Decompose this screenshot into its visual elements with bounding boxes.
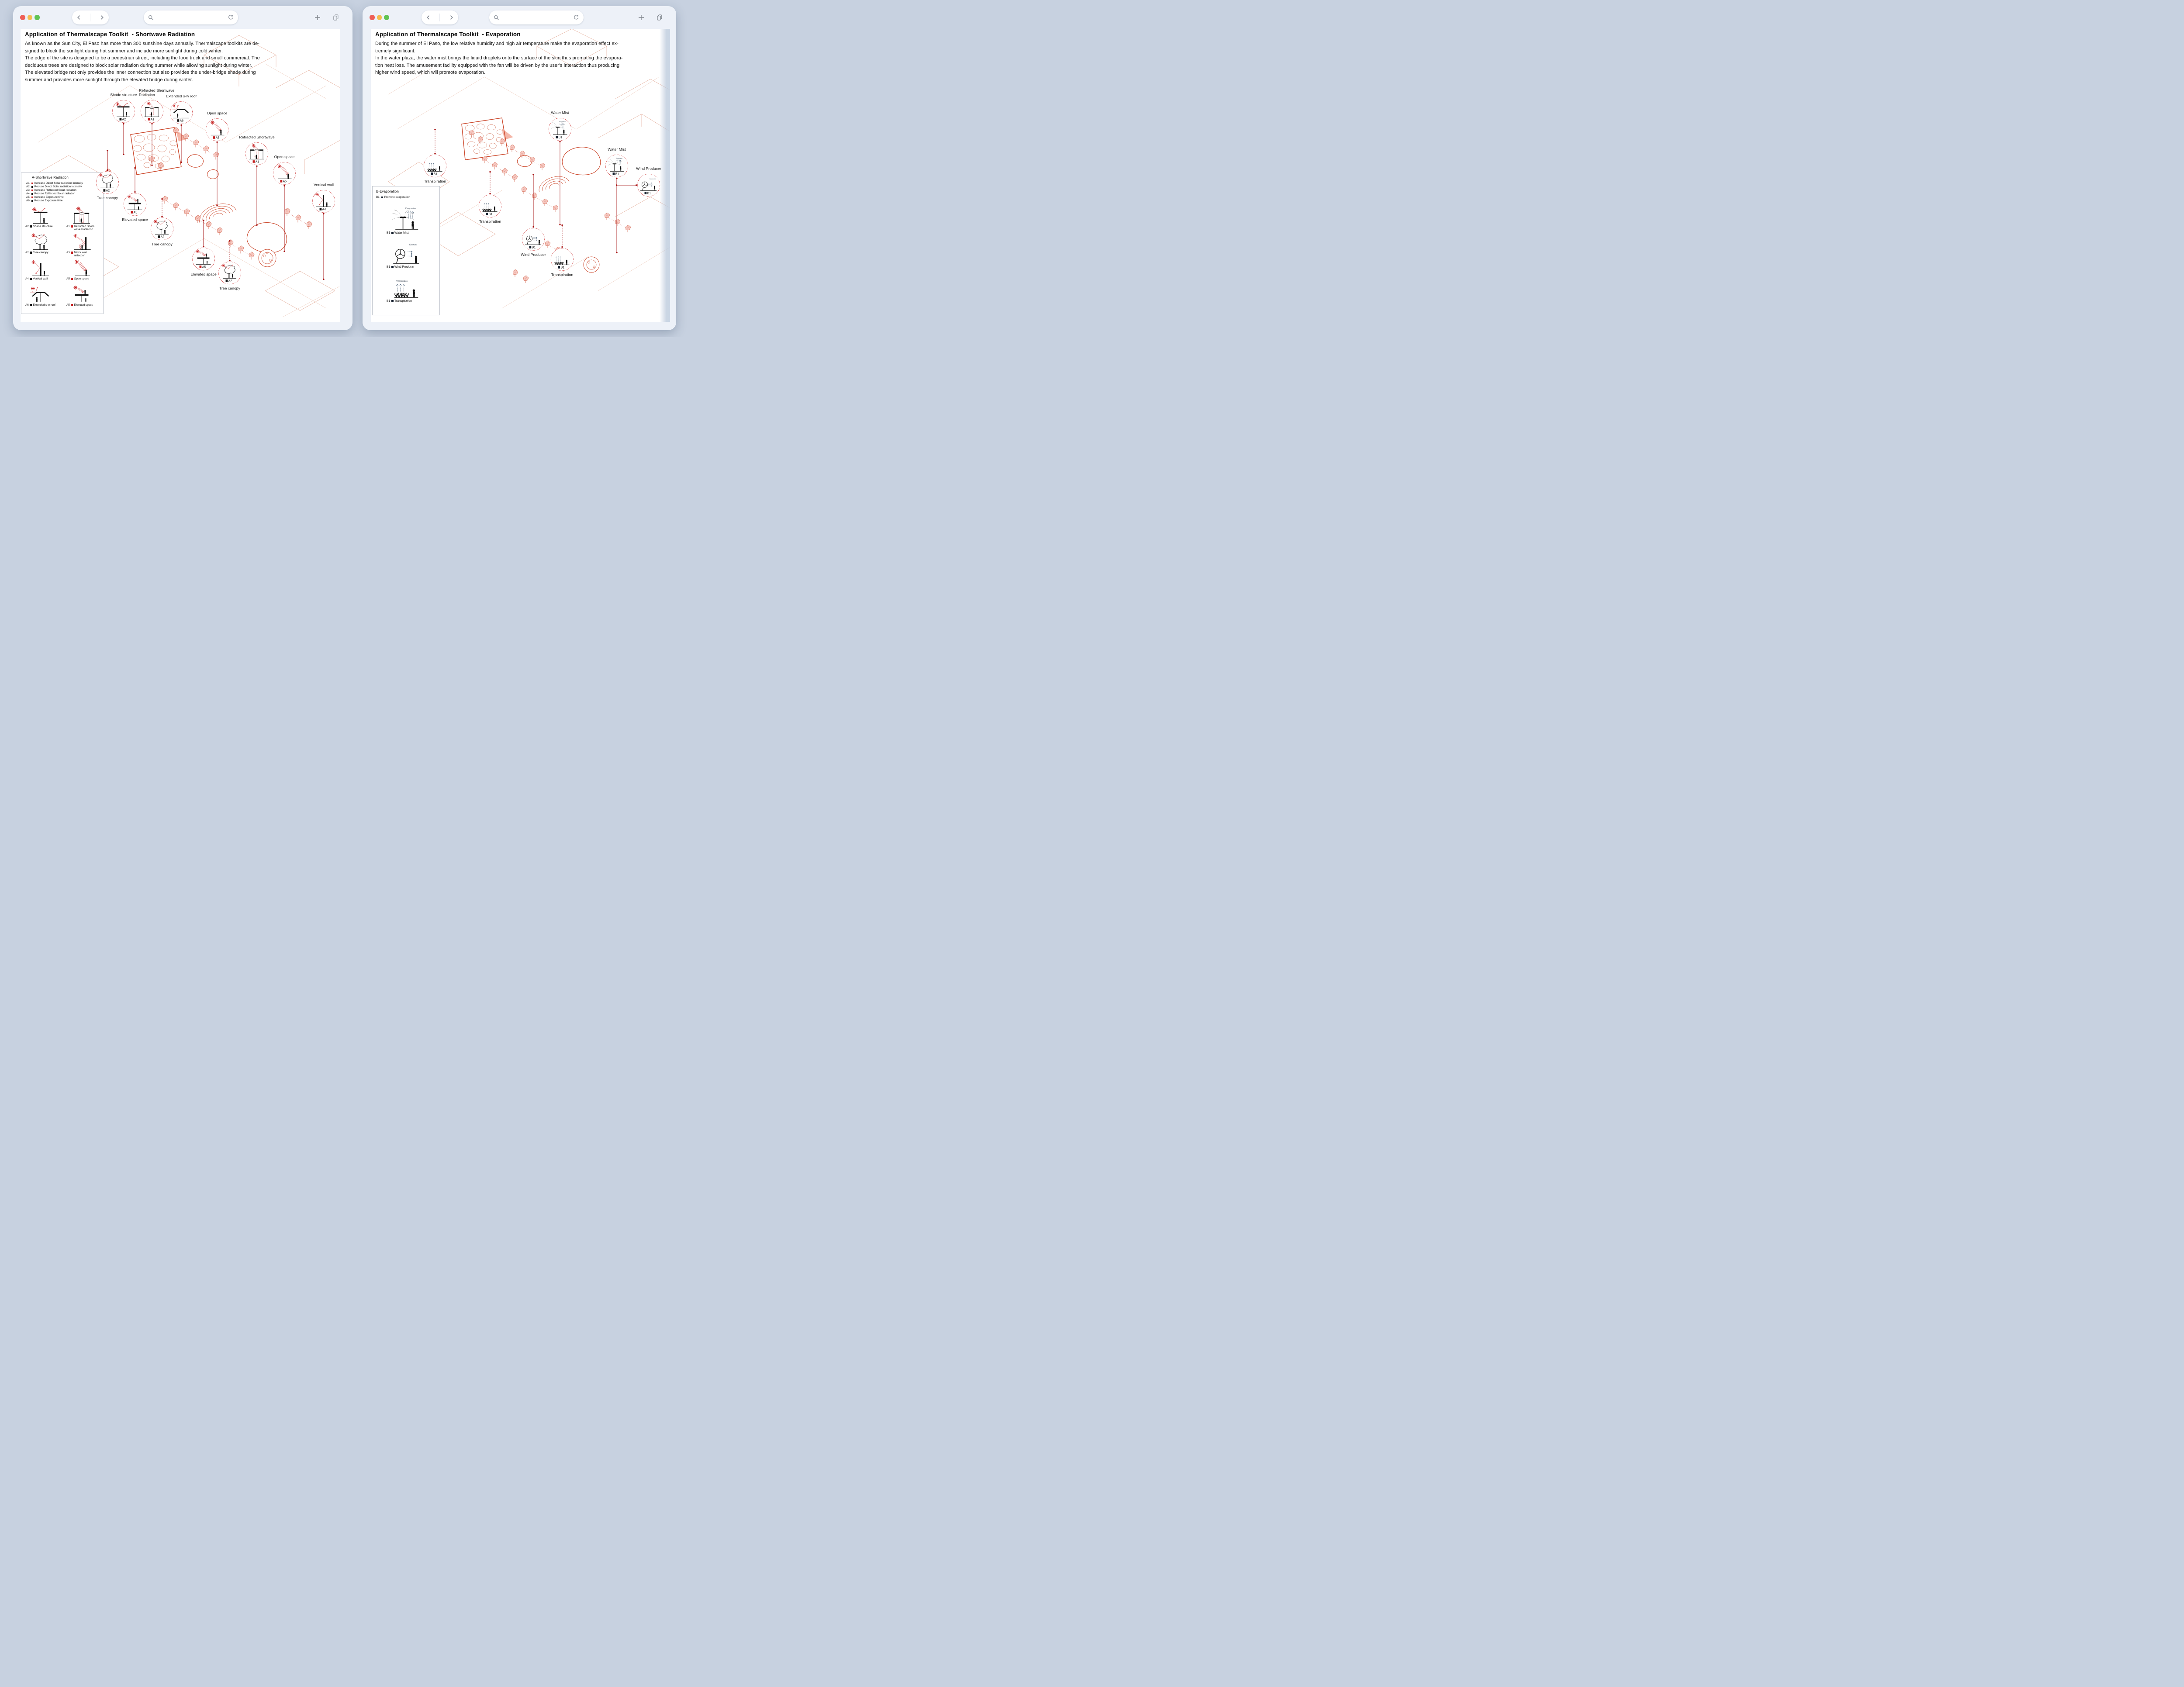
svg-text:A2: A2 [161,235,165,238]
callout-water-mist: EvaporationB1 [548,117,572,141]
callout-tree-canopy: A2 [150,217,174,241]
zoom-button[interactable] [35,15,40,20]
reload-icon[interactable] [573,14,579,21]
back-icon[interactable] [76,15,82,20]
callout-label-extended-s-w-roof: Extended s-w roof [166,94,197,99]
tab-overview-icon[interactable] [656,14,663,21]
svg-text:A1: A1 [256,160,259,163]
callout-label-vertical-wall: Vertical wall [314,183,334,187]
svg-text:A1: A1 [151,118,155,121]
callout-transpiration: B1 [423,154,447,178]
browser-window-shortwave: A-Shortwave Radiation A1Increase Direct … [13,6,352,330]
page-title: Application of Thermalscape Toolkit - Sh… [25,31,195,38]
svg-text:Evaporation: Evaporation [650,178,656,179]
callout-label-shade-structure: Shade structure [110,93,137,97]
nav-pill [72,10,109,24]
callout-tree-canopy: A2 [96,171,119,194]
callout-label-elevated-space: Elevated space [122,217,148,222]
svg-text:Evaporation: Evaporation [559,121,566,122]
page-paragraph: During the summer of El Paso, the low re… [375,40,670,76]
svg-text:B1: B1 [647,192,651,195]
svg-text:B1: B1 [489,213,493,216]
svg-text:Evaporation: Evaporation [616,157,622,159]
svg-text:A5: A5 [216,136,220,139]
callout-label-water-mist: Water Mist [608,147,625,152]
svg-text:A5: A5 [134,211,138,214]
document-shortwave: A-Shortwave Radiation A1Increase Direct … [21,29,340,322]
callout-refracted-shortwave: A1 [245,142,269,166]
svg-text:A5: A5 [283,180,287,183]
nav-divider [439,14,440,21]
callout-extended-s-w-roof: A6 [169,101,193,124]
svg-text:A2: A2 [228,279,232,283]
callout-label-transpiration: Transpiration [479,219,501,224]
callout-label-transpiration: Transpiration [424,179,446,184]
svg-text:A5: A5 [202,266,206,269]
callout-label-tree-canopy: Tree canopy [152,242,173,247]
browser-toolbar [13,6,352,29]
new-tab-icon[interactable] [314,14,321,21]
address-bar[interactable] [144,10,238,24]
page-title: Application of Thermalscape Toolkit - Ev… [375,31,521,38]
minimize-button[interactable] [28,15,33,20]
callout-label-tree-canopy: Tree canopy [219,286,240,291]
callout-label-open-space: Open space [207,111,228,116]
svg-text:B1: B1 [615,172,619,176]
svg-text:A6: A6 [180,119,184,122]
callout-elevated-space: A5 [192,247,215,271]
callout-open-space: A5 [205,118,229,141]
zoom-button[interactable] [384,15,389,20]
callout-label-wind-producer: Wind Producer [636,166,661,171]
callout-label-water-mist: Water Mist [551,110,569,115]
page-paragraph: As known as the Sun City, El Paso has mo… [25,40,333,84]
callout-transpiration: B1 [478,194,502,218]
callout-wind-producer: B1 [522,228,545,251]
nav-divider [90,14,90,21]
callout-label-wind-producer: Wind Producer [521,252,546,257]
svg-text:A2: A2 [122,118,126,121]
svg-text:B1: B1 [434,172,438,176]
nav-pill [422,10,458,24]
search-icon [494,15,499,21]
close-button[interactable] [20,15,25,20]
callout-open-space: A5 [273,162,296,185]
address-bar[interactable] [489,10,584,24]
browser-toolbar [363,6,676,29]
callout-vertical-wall: A4 [312,190,335,213]
traffic-lights [370,15,389,20]
traffic-lights [20,15,40,20]
callout-transpiration: B1 [550,248,574,271]
svg-text:B1: B1 [532,246,536,249]
new-tab-icon[interactable] [638,14,645,21]
callout-tree-canopy: A2 [218,261,242,285]
callout-water-mist: EvaporationB1 [605,154,629,178]
callout-label-tree-canopy: Tree canopy [97,196,118,200]
svg-text:A2: A2 [106,189,110,192]
svg-text:B1: B1 [559,136,563,139]
callout-refracted-shortwave-radiation: A1 [140,100,164,123]
tab-overview-icon[interactable] [332,14,339,21]
callout-label-transpiration: Transpiration [551,273,573,277]
callout-label-open-space: Open space [274,155,295,159]
minimize-button[interactable] [377,15,382,20]
callout-label-elevated-space: Elevated space [190,272,216,277]
close-button[interactable] [370,15,375,20]
callout-label-refracted-shortwave: Refracted Shortwave [239,135,274,140]
callout-shade-structure: A2 [112,100,135,123]
document-evaporation: B-Evaporation B1Promote evaporation Evap… [371,29,670,322]
search-icon [148,15,154,21]
back-icon[interactable] [426,15,431,20]
browser-window-evaporation: B-Evaporation B1Promote evaporation Evap… [363,6,676,330]
svg-text:B1: B1 [561,266,565,269]
svg-text:A4: A4 [322,208,326,211]
reload-icon[interactable] [228,14,234,21]
callout-wind-producer: EvaporationB1 [637,173,660,197]
forward-icon[interactable] [449,15,454,20]
forward-icon[interactable] [99,15,104,20]
callout-elevated-space: A5 [123,193,147,216]
desktop: A-Shortwave Radiation A1Increase Direct … [0,0,692,337]
